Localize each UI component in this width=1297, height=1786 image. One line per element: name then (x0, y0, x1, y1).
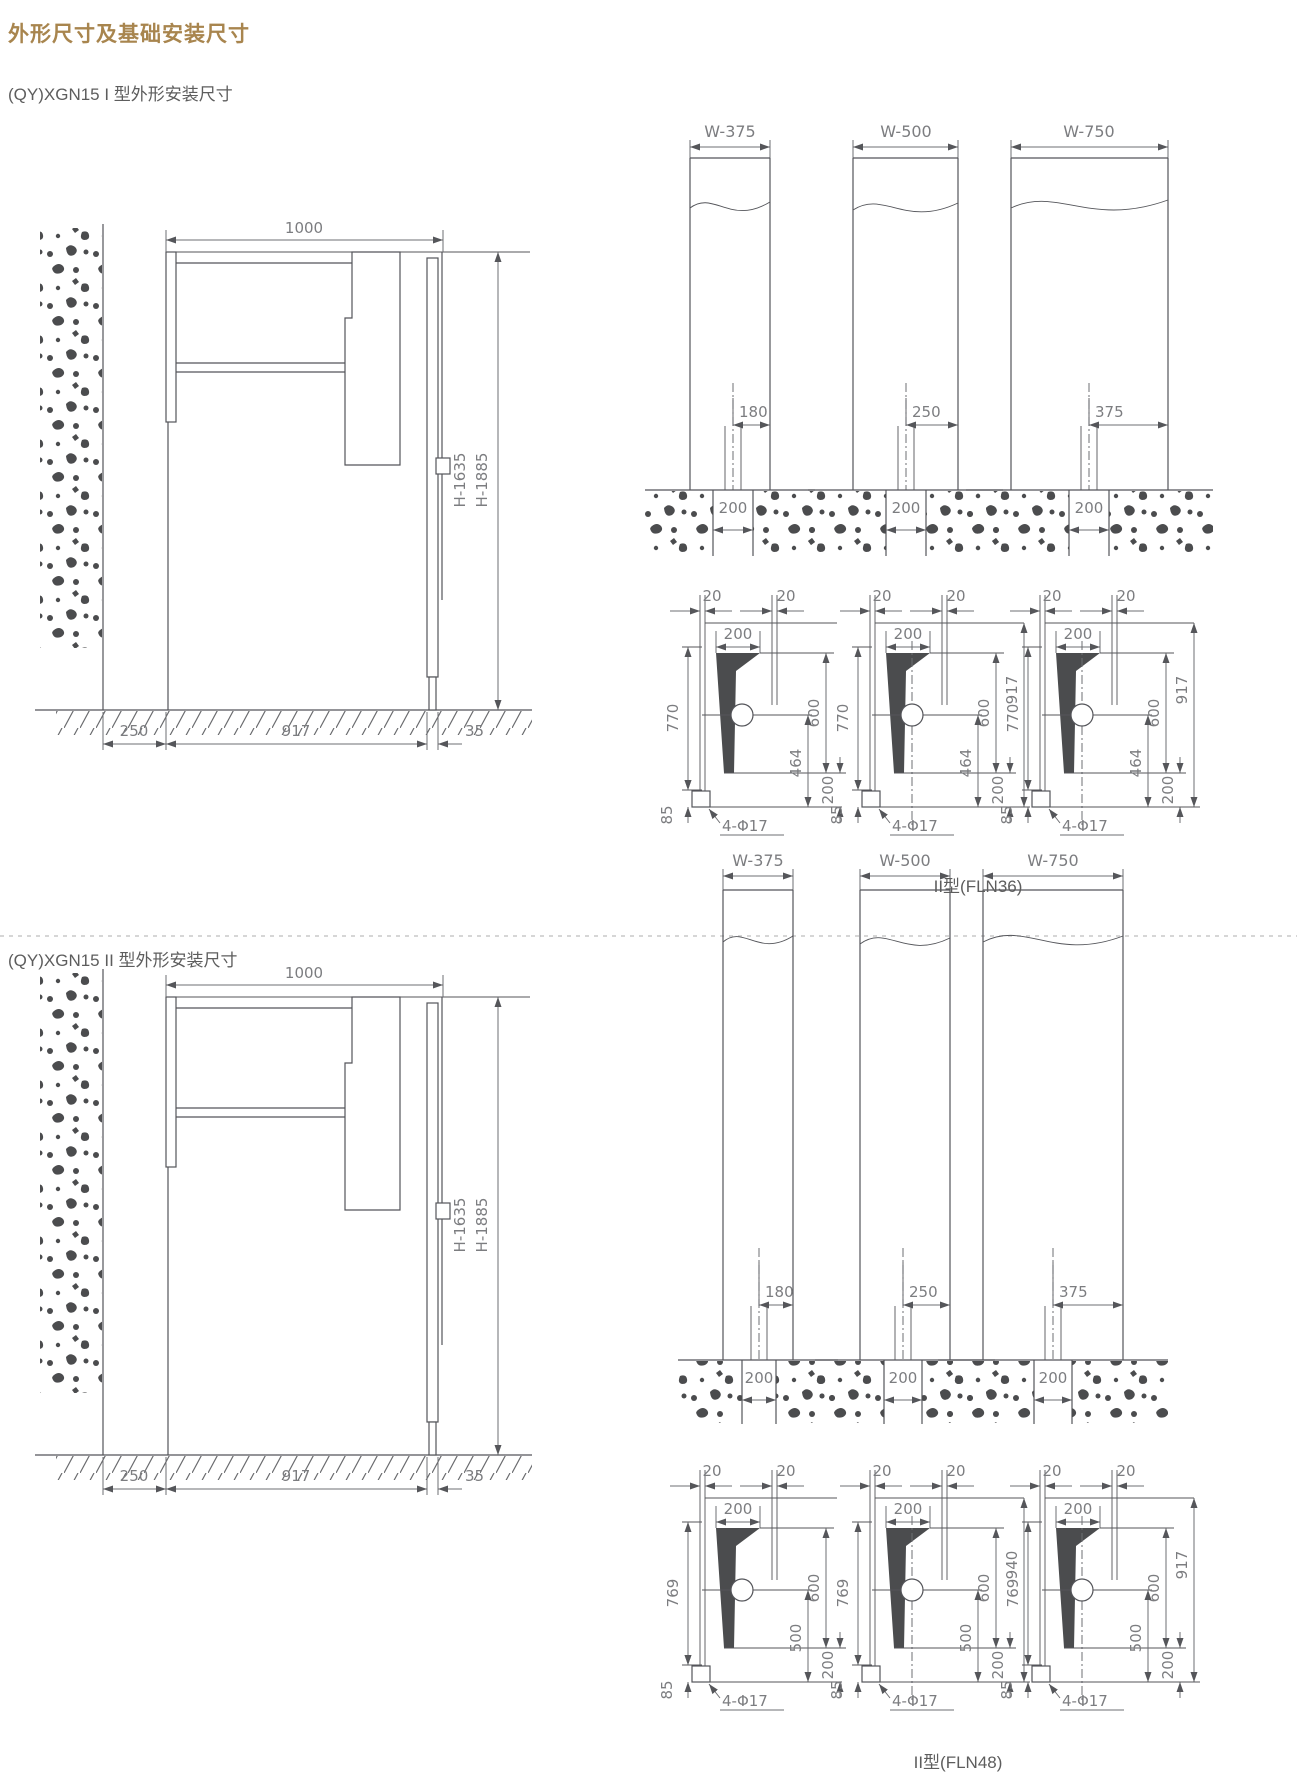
elevation-w375-s2: W-375 180 200 (678, 851, 838, 1424)
dim-35: 35 (465, 722, 484, 740)
dim-200-top: 200 (724, 625, 753, 643)
dim-250: 250 (120, 1467, 149, 1485)
dim-20-left: 20 (702, 1462, 721, 1480)
dim-769: 769 (1004, 1579, 1022, 1608)
dim-769: 769 (834, 1579, 852, 1608)
trench-width: 200 (1039, 1369, 1068, 1387)
dim-770: 770 (664, 704, 682, 733)
holes-label: 4-Φ17 (1062, 817, 1108, 835)
anchor-hole (731, 704, 753, 726)
foundation-plan-2-s2: 20 20 200 600 500 200 940 769 85 4-Φ17 (828, 1462, 1030, 1710)
section2-subtitle: (QY)XGN15 II 型外形安装尺寸 (8, 946, 238, 971)
holes-label: 4-Φ17 (722, 817, 768, 835)
holes-label: 4-Φ17 (892, 1692, 938, 1710)
dim-20-left: 20 (872, 587, 891, 605)
anchor-hole (901, 1579, 923, 1601)
dim-200-bot: 200 (819, 1651, 837, 1680)
dim-500: 500 (787, 1624, 805, 1653)
dim-20-left: 20 (1042, 1462, 1061, 1480)
foundation-plan-1-s2: 20 20 200 600 500 200 769 85 4-Φ17 (658, 1462, 846, 1710)
elev-label: W-500 (879, 851, 930, 870)
dim-250: 250 (120, 722, 149, 740)
dim-200-bot: 200 (819, 776, 837, 805)
dim-940: 940 (1003, 1551, 1021, 1580)
base-plate (862, 791, 880, 807)
section1-caption: II型(FLN36) (878, 872, 1078, 897)
dim-85: 85 (828, 1680, 846, 1699)
dim-20-left: 20 (1042, 587, 1061, 605)
elevation-w750-s2: W-750 375 200 (938, 851, 1168, 1424)
dim-464: 464 (1127, 749, 1145, 778)
dim-917: 917 (282, 1467, 311, 1485)
elevation-w500-s1: W-500 250 200 (808, 122, 1003, 556)
side-view-section2: 1000 H-1635 H-1885 250 917 35 (35, 964, 532, 1495)
foundation-plan-1-s1: 20 20 200 600 464 200 770 85 4-Φ17 (658, 587, 846, 835)
trench-width: 200 (889, 1369, 918, 1387)
dim-20-right: 20 (776, 1462, 795, 1480)
anchor-hole (1071, 1579, 1093, 1601)
dim-200-top: 200 (724, 1500, 753, 1518)
dim-200-bot: 200 (989, 1651, 1007, 1680)
dim-20-right: 20 (1116, 587, 1135, 605)
dim-464: 464 (787, 749, 805, 778)
dim-200-bot: 200 (989, 776, 1007, 805)
dim-200-bot: 200 (1159, 776, 1177, 805)
dim-917: 917 (282, 722, 311, 740)
handle (436, 1203, 450, 1219)
base-plate (1032, 791, 1050, 807)
dim-85: 85 (828, 805, 846, 824)
dim-464: 464 (957, 749, 975, 778)
section1-subtitle: (QY)XGN15 I 型外形安装尺寸 (8, 80, 233, 105)
foundation-plan-3-s1: 20 20 200 600 464 200 917 770 85 4-Φ17 (998, 587, 1200, 835)
elev-label: W-750 (1063, 122, 1114, 141)
page: 1000 H-1635 H-1885 250 917 35 W-375 180 … (0, 0, 1297, 1786)
anchor-hole (731, 1579, 753, 1601)
cable-offset: 180 (765, 1283, 794, 1301)
holes-label: 4-Φ17 (722, 1692, 768, 1710)
base-plate (862, 1666, 880, 1682)
trench-width: 200 (892, 499, 921, 517)
dim-85: 85 (998, 1680, 1016, 1699)
cable-offset: 250 (912, 403, 941, 421)
dim-200-top: 200 (894, 625, 923, 643)
section2-caption: II型(FLN48) (858, 1748, 1058, 1773)
cable-offset: 375 (1059, 1283, 1088, 1301)
dim-770: 770 (834, 704, 852, 733)
dim-917: 917 (1173, 676, 1191, 705)
dim-85: 85 (658, 805, 676, 824)
foundation-plan-2-s1: 20 20 200 600 464 200 917 770 85 4-Φ17 (828, 587, 1030, 835)
cable-offset: 250 (909, 1283, 938, 1301)
dim-500: 500 (957, 1624, 975, 1653)
anchor-hole (1071, 704, 1093, 726)
elev-label: W-375 (732, 851, 783, 870)
dim-20-right: 20 (946, 1462, 965, 1480)
trench-width: 200 (745, 1369, 774, 1387)
dim-770: 770 (1004, 704, 1022, 733)
dim-20-right: 20 (946, 587, 965, 605)
foundation-plan-3-s2: 20 20 200 600 500 200 917 769 85 4-Φ17 (998, 1462, 1200, 1710)
dim-h2: H-1885 (473, 1198, 491, 1253)
dim-85: 85 (998, 805, 1016, 824)
holes-label: 4-Φ17 (892, 817, 938, 835)
base-plate (692, 791, 710, 807)
dim-h1: H-1635 (451, 1198, 469, 1253)
elevation-w500-s2: W-500 250 200 (815, 851, 995, 1424)
trench-width: 200 (1075, 499, 1104, 517)
dim-20-left: 20 (702, 587, 721, 605)
dim-35: 35 (465, 1467, 484, 1485)
dim-917: 917 (1173, 1551, 1191, 1580)
base-plate (1032, 1666, 1050, 1682)
drawing-canvas: 1000 H-1635 H-1885 250 917 35 W-375 180 … (0, 0, 1297, 1786)
dim-200-top: 200 (1064, 625, 1093, 643)
cable-offset: 180 (739, 403, 768, 421)
dim-769: 769 (664, 1579, 682, 1608)
dim-20-left: 20 (872, 1462, 891, 1480)
dim-20-right: 20 (776, 587, 795, 605)
dim-h1: H-1635 (451, 453, 469, 508)
dim-917: 917 (1003, 676, 1021, 705)
dim-200-top: 200 (894, 1500, 923, 1518)
dim-20-right: 20 (1116, 1462, 1135, 1480)
trench-width: 200 (719, 499, 748, 517)
dim-200-top: 200 (1064, 1500, 1093, 1518)
elevation-w375-s1: W-375 180 200 (645, 122, 815, 556)
elev-label: W-750 (1027, 851, 1078, 870)
wall-speckle (40, 973, 102, 1393)
wall-speckle (40, 228, 102, 648)
dim-500: 500 (1127, 1624, 1145, 1653)
dim-85: 85 (658, 1680, 676, 1699)
dim-h2: H-1885 (473, 453, 491, 508)
side-view-section1: 1000 H-1635 H-1885 250 917 35 (35, 219, 532, 750)
dim-200-bot: 200 (1159, 1651, 1177, 1680)
dim-width: 1000 (285, 964, 323, 982)
holes-label: 4-Φ17 (1062, 1692, 1108, 1710)
elevation-w750-s1: W-750 375 200 (966, 122, 1213, 556)
elev-label: W-375 (704, 122, 755, 141)
anchor-hole (901, 704, 923, 726)
cable-offset: 375 (1095, 403, 1124, 421)
elev-label: W-500 (880, 122, 931, 141)
handle (436, 458, 450, 474)
dim-width: 1000 (285, 219, 323, 237)
base-plate (692, 1666, 710, 1682)
page-title: 外形尺寸及基础安装尺寸 (8, 18, 250, 48)
